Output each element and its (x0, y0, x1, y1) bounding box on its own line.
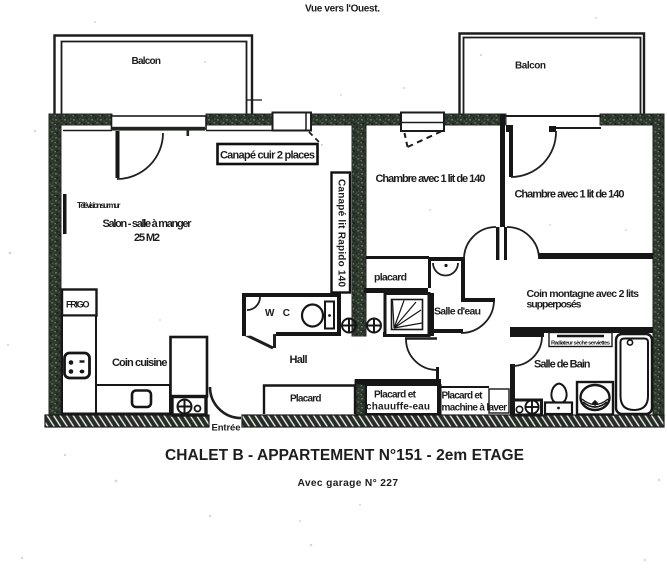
svg-text:Canapé lit Rapido 140: Canapé lit Rapido 140 (336, 179, 347, 287)
svg-text:Balcon: Balcon (132, 56, 162, 67)
svg-text:Placard et: Placard et (374, 390, 417, 401)
svg-text:Radiateur sèche serviettes: Radiateur sèche serviettes (551, 341, 610, 347)
svg-text:Salon - salle à manger: Salon - salle à manger (103, 218, 193, 230)
svg-text:chauuffe-eau: chauuffe-eau (366, 402, 430, 413)
svg-text:machine à laver: machine à laver (442, 403, 508, 414)
svg-text:Avec garage N° 227: Avec garage N° 227 (298, 478, 399, 489)
svg-text:FRIGO: FRIGO (66, 300, 90, 310)
svg-text:Télévision sur mur: Télévision sur mur (77, 201, 121, 210)
svg-text:Entrée: Entrée (212, 423, 241, 434)
svg-text:Chambre avec 1 lit de 140: Chambre avec 1 lit de 140 (515, 189, 625, 201)
svg-text:CHALET B - APPARTEMENT N°151 -: CHALET B - APPARTEMENT N°151 - 2em ETAGE (165, 447, 524, 464)
svg-text:Balcon: Balcon (515, 61, 546, 72)
svg-text:Placard et: Placard et (442, 391, 484, 402)
svg-text:Salle de Bain: Salle de Bain (534, 359, 591, 371)
svg-text:Placard: Placard (290, 394, 322, 405)
svg-text:placard: placard (374, 272, 407, 284)
svg-text:supperposés: supperposés (527, 299, 582, 311)
svg-text:Salle d'eau: Salle d'eau (434, 306, 481, 318)
svg-text:25 M2: 25 M2 (134, 232, 160, 244)
svg-text:Chambre avec 1 lit de 140: Chambre avec 1 lit de 140 (376, 173, 486, 185)
svg-text:Coin cuisine: Coin cuisine (112, 357, 168, 369)
svg-text:Canapé cuir 2 places: Canapé cuir 2 places (220, 150, 315, 162)
svg-text:Hall: Hall (290, 354, 308, 366)
svg-text:W C: W C (265, 308, 290, 319)
svg-text:Vue vers l'Ouest.: Vue vers l'Ouest. (305, 4, 380, 15)
